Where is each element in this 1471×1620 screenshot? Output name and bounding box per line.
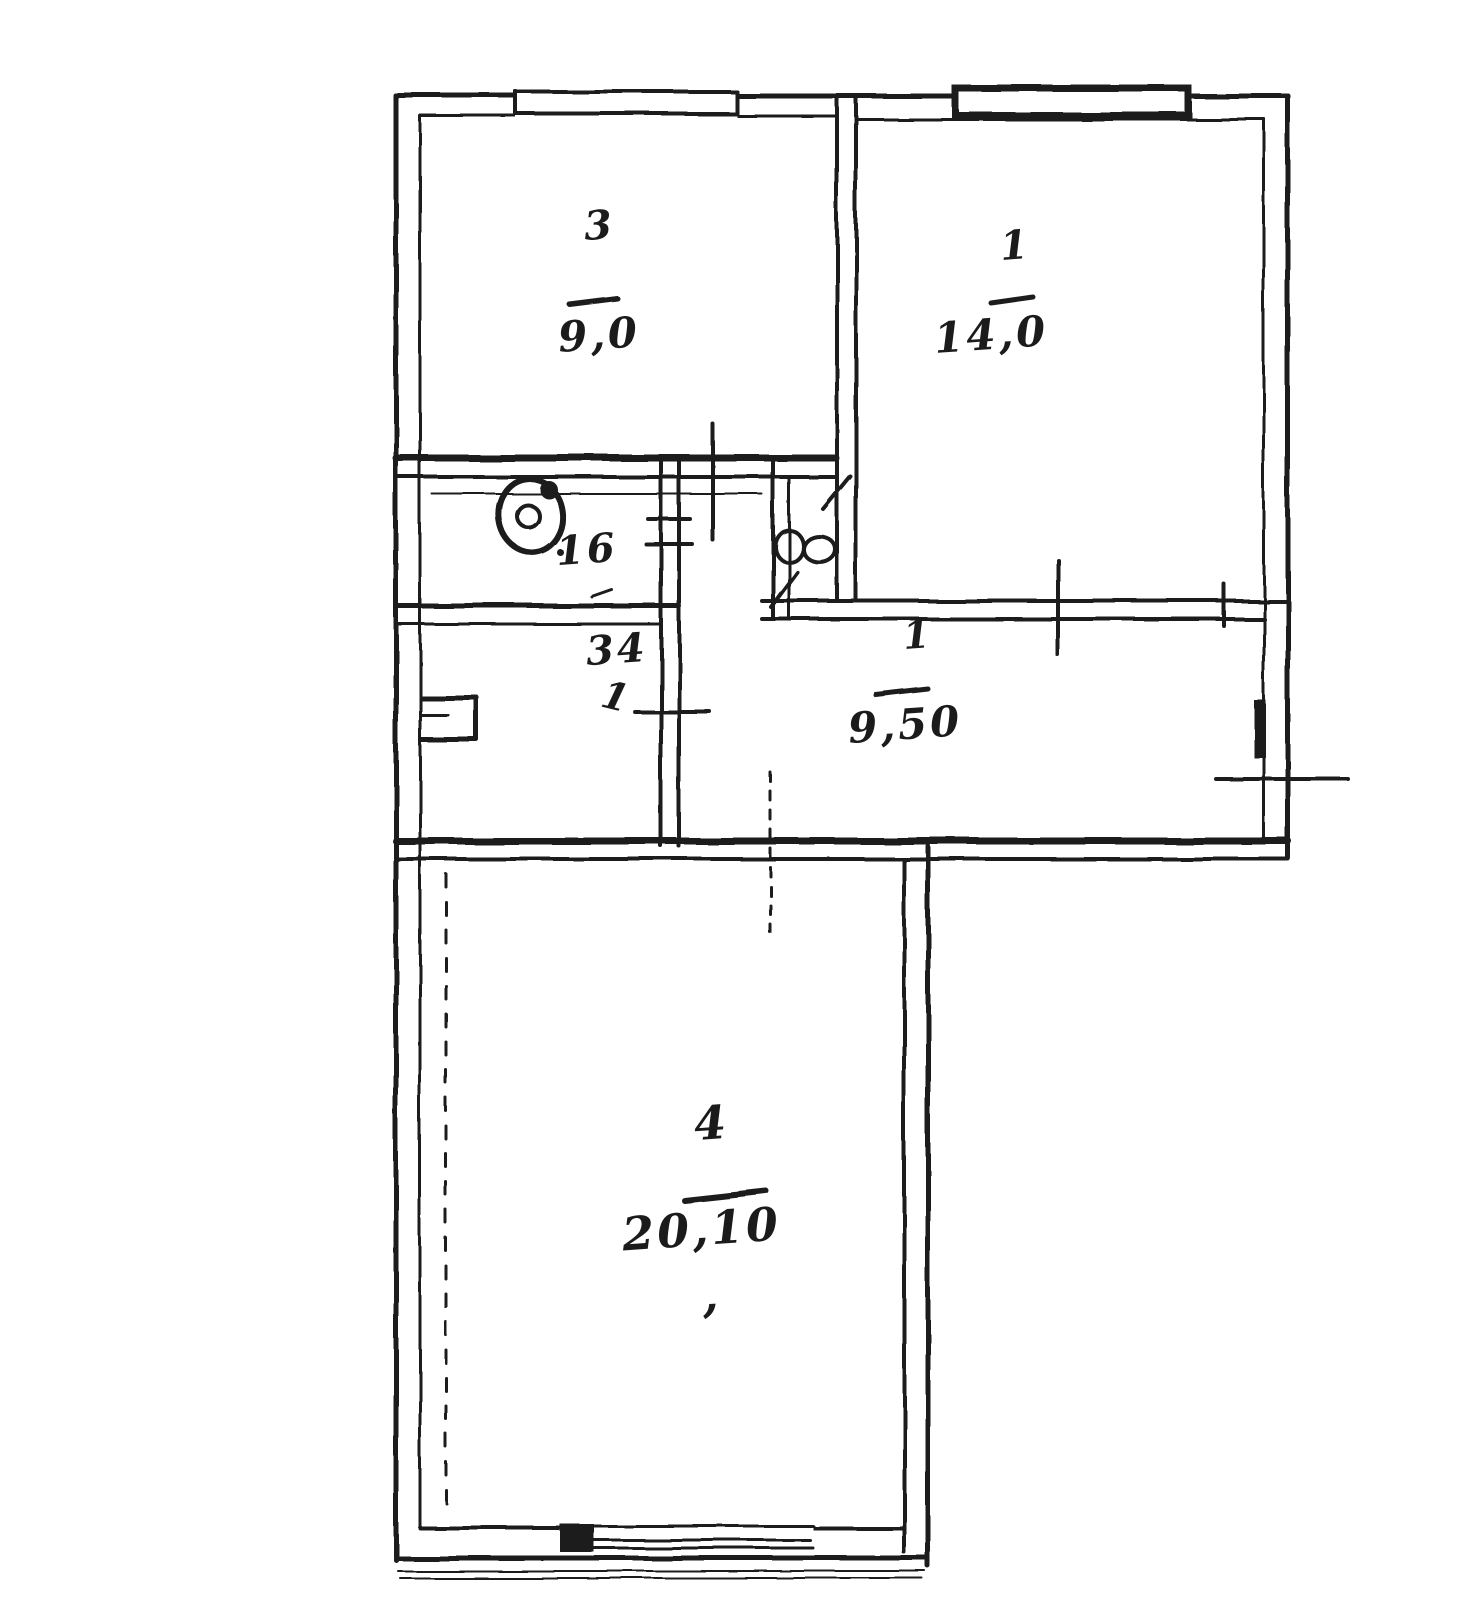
window-bottom [560, 1520, 813, 1552]
wc-dimension-label: 16 [555, 528, 619, 572]
room-1-area: 14,0 [933, 310, 1050, 360]
room-4-number: 4 [692, 1099, 730, 1147]
hall-room-number: 1 [902, 615, 934, 655]
window-top-left [516, 88, 737, 118]
stray-comma-mark: , [700, 1271, 722, 1318]
inner-dimension-label: 34 [585, 628, 649, 672]
room-3-number: 3 [583, 205, 617, 247]
fraction-bars [570, 297, 1033, 1200]
inner-walls [396, 96, 1288, 1578]
window-top-right [953, 84, 1190, 118]
room-1-number: 1 [999, 225, 1033, 267]
hall-room-area: 9,50 [847, 700, 964, 750]
room-4-area: 20,10 [621, 1201, 783, 1258]
outer-walls [396, 96, 1288, 1560]
wall-niche [421, 698, 477, 740]
dimension-ticks [635, 424, 1348, 932]
room-3-area: 9,0 [557, 311, 642, 359]
balcony-door-mark [1254, 700, 1266, 758]
scanned-floorplan-page: 3 9,0 1 14,0 1 9,50 4 20,10 , 16 34 1 [0, 0, 1471, 1620]
floorplan-drawing [0, 0, 1471, 1620]
